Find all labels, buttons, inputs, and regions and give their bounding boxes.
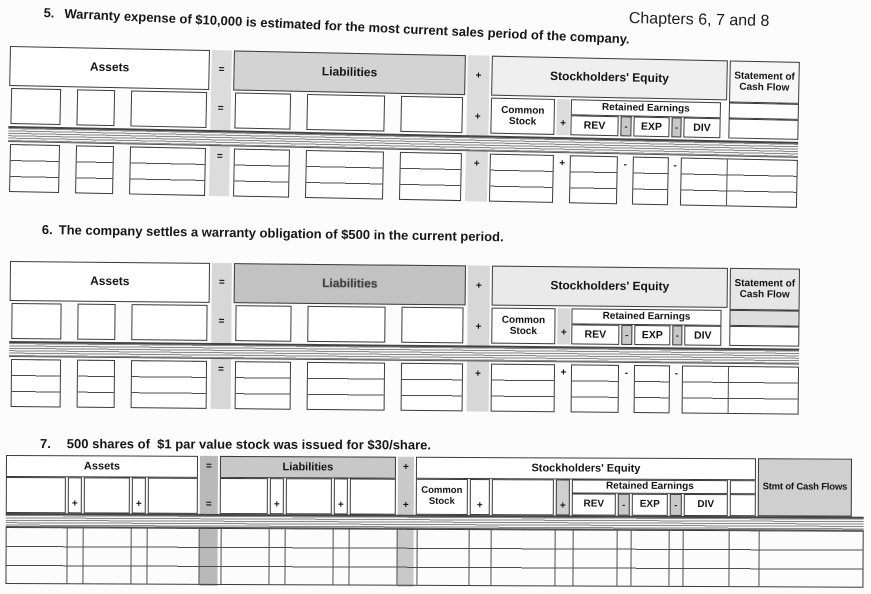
rev-header-cell: REV [570,115,618,136]
liability-sub-cell [235,305,291,342]
plus-operator: + [467,69,489,83]
asset-sub-cell [76,89,115,126]
div-header-cell: DIV [683,118,720,139]
problem-6-number: 6. [42,222,53,237]
plus-operator: + [467,110,489,124]
problem-5-number: 5. [43,5,55,20]
exp-header-cell: EXP [633,117,669,138]
grid-line [668,531,669,586]
equity-header-cell: Stockholders' Equity [416,457,756,480]
minus-operator: - [670,494,682,516]
equals-operator: = [210,150,230,164]
minus-operator: - [620,116,631,136]
retained-earnings-header-cell: Retained Earnings [572,479,728,494]
asset-sub-cell [6,477,66,513]
liability-entry-box [305,150,384,200]
retained-earnings-header-cell: Retained Earnings [571,308,721,325]
liability-sub-cell [220,478,268,514]
rev-entry-box [571,364,619,412]
common-stock-header-cell: Common Stock [416,479,468,515]
cash-flow-header-cell: Statement of Cash Flow [730,268,800,311]
grid-line [616,531,617,586]
accounting-equation-table-problem-6: AssetsLiabilitiesStockholders' EquitySta… [9,261,800,415]
liability-sub-cell [307,306,385,343]
cash-flow-header-cell: Stmt of Cash Flows [758,458,852,516]
grid-line [82,528,83,583]
asset-entry-box [75,145,114,194]
rev-entry-box [569,155,618,204]
problem-5-text: 5.Warranty expense of $10,000 is estimat… [43,5,630,47]
cash-flow-sub-cell [729,326,799,347]
blank-cell [492,479,554,515]
minus-operator: - [618,494,630,516]
plus-operator: + [557,326,570,340]
cash-flow-sub-cell [728,118,798,139]
grid-line [728,531,729,586]
minus-operator: - [619,158,632,172]
liability-sub-cell [234,93,291,130]
cash-flow-sub-cell [729,102,799,119]
blank-cell [730,494,756,516]
equals-operator: = [211,315,231,329]
equals-operator: = [212,276,232,290]
problem-7-statement: 500 shares of $1 par value stock was iss… [67,436,431,452]
grid-line [758,531,759,586]
exp-entry-box [632,157,669,206]
liabilities-header-cell: Liabilities [233,50,466,95]
grid-line [416,530,417,585]
chapters-heading: Chapters 6, 7 and 8 [629,10,770,31]
problem-6-statement: The company settles a warranty obligatio… [59,222,504,244]
asset-entry-box [77,360,115,408]
assets-header-cell: Assets [10,261,210,303]
div-cashflow-entry-box [682,365,799,414]
asset-entry-box [11,359,61,407]
equity-header-cell: Stockholders' Equity [491,56,728,101]
cash-flow-sub-cell [729,310,799,327]
exp-entry-box [634,365,670,413]
assets-header-cell: Assets [9,46,210,90]
equals-operator: = [200,498,218,512]
plus-operator: + [466,157,488,171]
liabilities-header-cell: Liabilities [220,456,396,479]
liability-sub-cell [286,478,332,514]
problem-7-number: 7. [40,436,51,451]
grid-line [726,159,728,205]
grid-line [198,529,199,584]
common-stock-entry-box [489,154,554,203]
minus-operator: - [620,367,633,381]
minus-operator: - [621,325,632,345]
common-stock-header-cell: Common Stock [490,98,555,135]
grid-line [490,530,491,585]
minus-operator: - [671,117,681,137]
grid-line [572,530,573,585]
grid-line [146,529,147,584]
plus-operator: + [468,279,490,293]
asset-sub-cell [11,303,61,339]
rev-header-cell: REV [571,324,619,344]
plus-operator: + [556,157,569,171]
grid-line [728,367,729,413]
common-stock-entry-box [491,364,555,413]
div-header-cell: DIV [684,325,721,345]
plus-operator: + [557,366,570,380]
entry-grid [5,527,863,588]
plus-operator: + [398,499,414,513]
liabilities-header-cell: Liabilities [234,263,466,305]
problem-7-text: 7.500 shares of $1 par value stock was i… [40,436,431,452]
plus-operator-cell: + [132,478,146,514]
plus-operator: + [398,461,414,475]
liability-entry-box [399,152,462,201]
grid-line [268,529,269,584]
plus-operator: + [467,320,489,334]
asset-sub-cell [148,478,198,514]
rev-header-cell: REV [572,493,616,515]
equals-operator: = [211,63,231,77]
asset-sub-cell [130,90,207,128]
equals-operator: = [211,102,231,116]
asset-entry-box [129,146,206,196]
equals-operator: = [211,363,231,377]
asset-sub-cell [10,88,61,125]
liability-entry-box [401,363,463,412]
liability-entry-box [233,149,290,198]
grid-line [630,531,631,586]
blank-cell [730,480,756,494]
grid-line [66,528,67,583]
grid-line [284,529,285,584]
problem-5-statement: Warranty expense of $10,000 is estimated… [64,6,630,47]
liability-sub-cell [350,479,396,515]
exp-header-cell: EXP [634,325,670,345]
plus-operator-cell: + [68,477,82,513]
grid-line [554,530,555,585]
grid-line [682,531,683,586]
grid-line [220,529,221,584]
liability-sub-cell [306,94,385,132]
common-stock-header-cell: Common Stock [491,308,555,345]
cash-flow-header-cell: Statement of Cash Flow [729,60,800,103]
plus-operator-cell: + [556,479,570,515]
plus-operator: + [556,117,569,131]
asset-sub-cell [131,304,207,341]
plus-operator-cell: + [470,479,490,515]
liability-sub-cell [400,96,463,133]
asset-entry-box [9,144,60,193]
plus-operator-cell: + [270,478,284,514]
liability-entry-box [307,362,385,411]
liability-sub-cell [401,307,463,344]
minus-operator: - [670,367,683,381]
liability-entry-box [235,361,291,410]
grid-line [396,530,397,585]
asset-entry-box [131,360,207,409]
minus-operator: - [669,159,682,173]
equity-header-cell: Stockholders' Equity [492,266,728,308]
asset-sub-cell [77,304,115,340]
grid-line [130,529,131,584]
problem-6-text: 6.The company settles a warranty obligat… [42,222,504,244]
accounting-equation-table-problem-7: AssetsLiabilitiesStockholders' EquityStm… [5,455,864,589]
minus-operator: - [672,325,682,345]
exp-header-cell: EXP [632,494,668,516]
grid-line [468,530,469,585]
grid-line [348,529,349,584]
accounting-equation-table-problem-5: AssetsLiabilitiesStockholders' EquitySta… [7,46,800,208]
grid-line [332,529,333,584]
equals-operator: = [200,460,218,474]
plus-operator: + [467,367,489,381]
asset-sub-cell [84,477,130,513]
assets-header-cell: Assets [6,455,198,478]
div-header-cell: DIV [684,494,728,516]
plus-operator-cell: + [334,478,348,514]
div-cashflow-entry-box [680,157,798,207]
